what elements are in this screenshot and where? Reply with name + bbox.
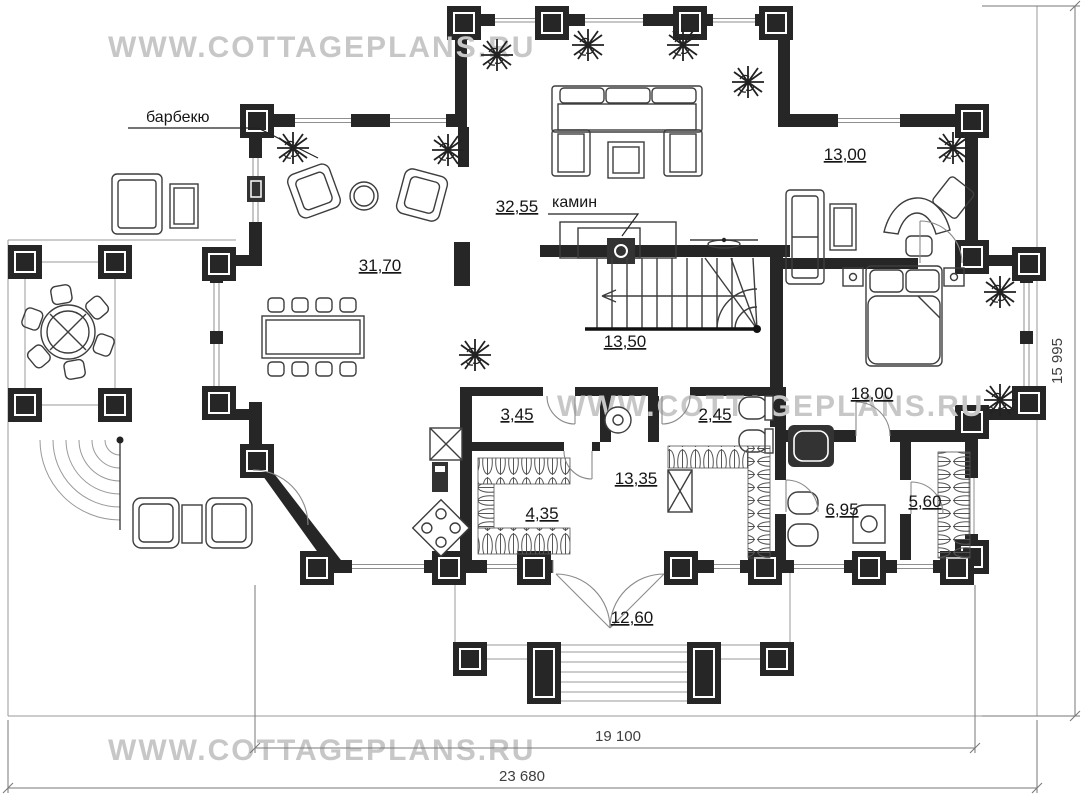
room-label-living: 32,55 — [496, 197, 539, 216]
watermark-top: WWW.COTTAGEPLANS.RU — [108, 31, 535, 64]
room-label-closet: 4,35 — [525, 504, 558, 523]
room-label-wc: 2,45 — [698, 405, 731, 424]
staircase — [585, 258, 761, 333]
dimension-total-width: 23 680 — [499, 768, 545, 785]
room-label-bedroom: 18,00 — [851, 384, 894, 403]
watermark-bottom: WWW.COTTAGEPLANS.RU — [108, 734, 535, 767]
bedroom-furniture — [843, 266, 964, 366]
floor-plan-page: WWW.COTTAGEPLANS.RU WWW.COTTAGEPLANS.RU … — [0, 0, 1089, 804]
floor-plan-drawing: WWW.COTTAGEPLANS.RU WWW.COTTAGEPLANS.RU … — [0, 0, 1089, 804]
lounge-armchairs — [247, 162, 449, 223]
room-label-lounge: 31,70 — [359, 256, 402, 275]
patio-armchairs — [133, 498, 252, 548]
outdoor-sofa-top-left — [112, 174, 198, 234]
dimension-total-height: 15 995 — [1049, 338, 1066, 384]
room-label-stair-hall: 13,50 — [604, 332, 647, 351]
room-label-study: 13,00 — [824, 145, 867, 164]
fireplace — [560, 222, 676, 264]
wardrobe-hangers — [478, 446, 970, 558]
room-label-porch: 12,60 — [611, 608, 654, 627]
barbecue-label: барбекю — [146, 109, 209, 126]
dimension-inner-width: 19 100 — [595, 728, 641, 745]
room-label-corridor: 13,35 — [615, 469, 658, 488]
dining-set — [262, 298, 364, 376]
room-label-wardrobe: 5,60 — [908, 492, 941, 511]
room-label-bathroom: 6,95 — [825, 500, 858, 519]
living-sofa-group — [552, 86, 702, 178]
fireplace-label: камин — [552, 194, 597, 211]
room-label-utility: 3,45 — [500, 405, 533, 424]
terrace-round-table — [20, 284, 115, 380]
fireplace-leader — [548, 214, 638, 236]
